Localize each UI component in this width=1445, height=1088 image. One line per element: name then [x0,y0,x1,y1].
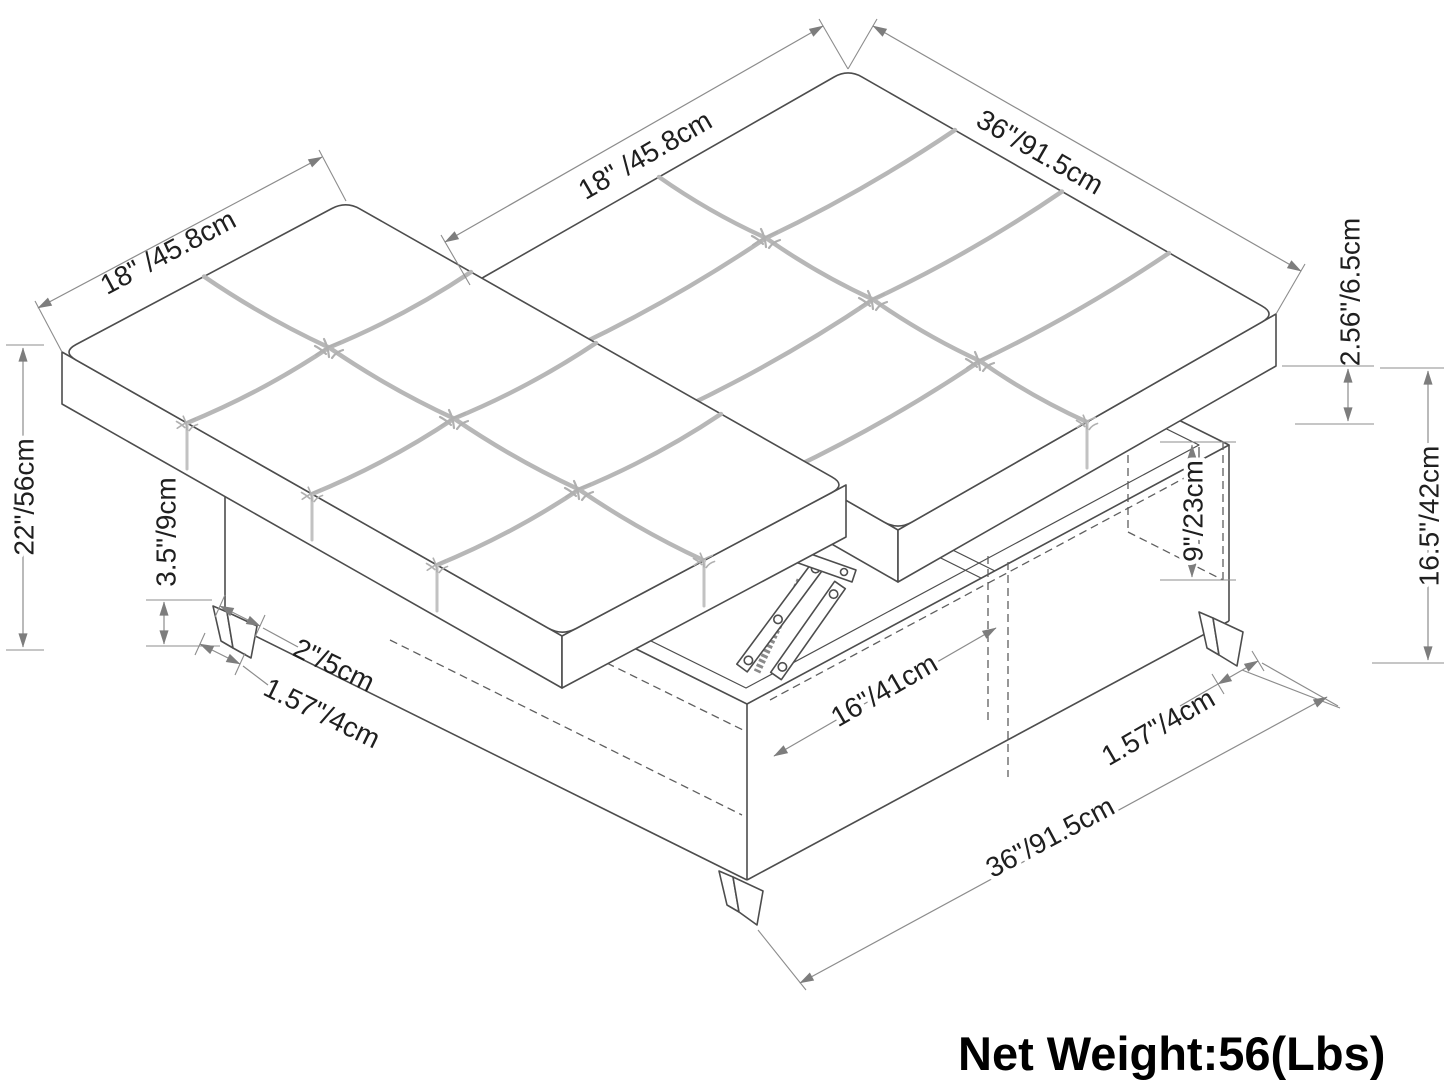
dim-label-base-height: 16.5"/42cm [1414,446,1445,587]
dimension-height-left: 22"/56cm [6,345,44,650]
dim-label-opening-width: 16"/41cm [825,647,942,733]
dim-label-cushion-thickness: 2.56"/6.5cm [1335,218,1366,366]
furniture-dimension-diagram: 18" /45.8cm 18" /45.8cm 36"/91.5cm 2.56"… [0,0,1445,1088]
dim-label-base-length-bottom: 36"/91.5cm [981,790,1120,883]
dimension-cushion-thickness: 2.56"/6.5cm [1282,218,1374,424]
leg-front-center [719,871,763,925]
dimension-leg-height: 3.5"/9cm [146,477,220,646]
leg-front-right [1199,612,1243,666]
dim-label-total-height: 22"/56cm [9,438,40,555]
dim-label-leg-inset-right: 1.57"/4cm [1096,682,1220,771]
dim-label-leg-height: 3.5"/9cm [151,477,182,587]
net-weight-text: Net Weight:56(Lbs) [958,1027,1385,1080]
dimension-height-right: 16.5"/42cm [1372,368,1445,663]
ottoman-diagram-canvas: 18" /45.8cm 18" /45.8cm 36"/91.5cm 2.56"… [0,0,1445,1088]
dimension-leg-inset-left: 1.57"/4cm [195,633,385,754]
dim-label-storage-depth: 9"/23cm [1178,460,1209,562]
